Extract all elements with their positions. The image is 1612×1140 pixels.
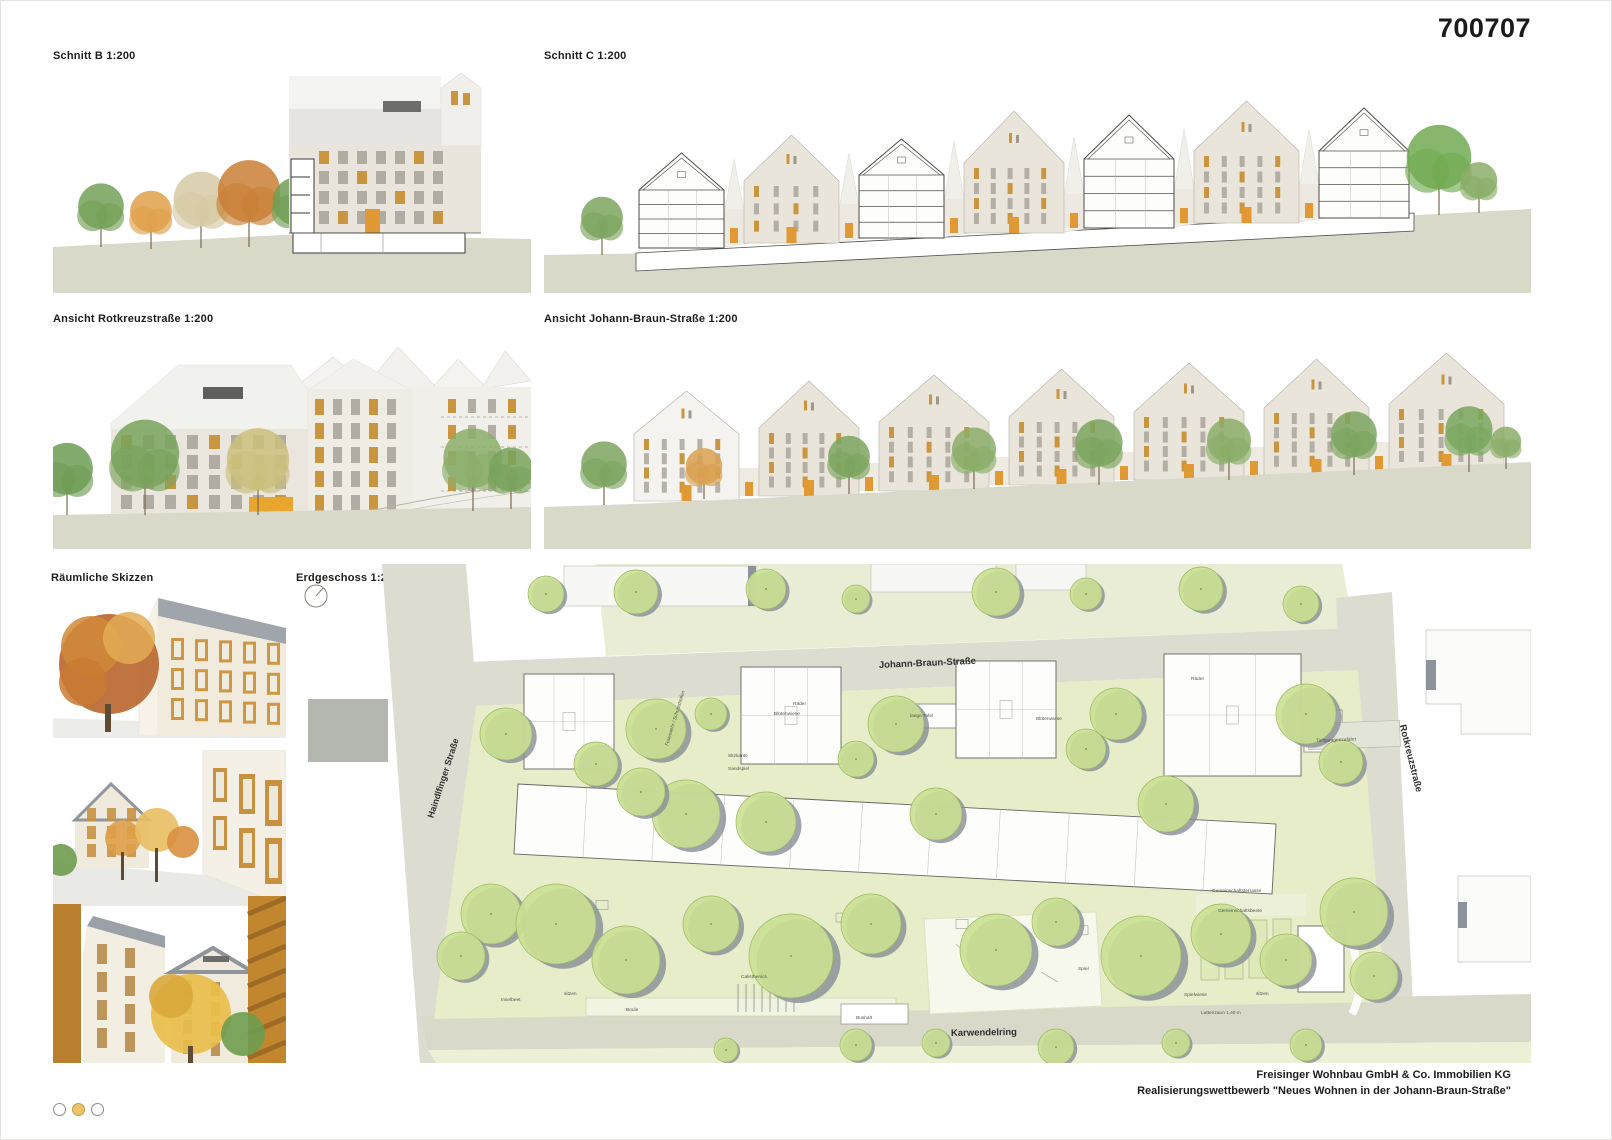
plan-label: Räder xyxy=(1191,676,1204,682)
tree-icon xyxy=(1460,162,1498,213)
page-dot[interactable] xyxy=(53,1103,66,1116)
tree-icon xyxy=(216,160,280,247)
tree-icon xyxy=(528,576,567,614)
sketch-perspective-2 xyxy=(53,750,286,906)
plan-label: Gemeinschaftsterrasse xyxy=(1212,888,1262,894)
plan-label: Gemeinschaftsbeete xyxy=(1218,908,1262,914)
plan-label: sitzen xyxy=(1256,991,1269,997)
plan-label: Sitzkante xyxy=(728,753,748,759)
plan-label: Blütenwiese xyxy=(1036,716,1062,722)
tree-icon xyxy=(53,443,93,515)
page-dot[interactable] xyxy=(72,1103,85,1116)
plan-label: Boule xyxy=(626,1007,639,1013)
plan-label: Lattenzaun 1,40 m xyxy=(1201,1010,1241,1016)
schnitt-c-drawing xyxy=(544,63,1531,293)
plan-label: sitzen xyxy=(564,991,577,997)
competition-board: 700707 Schnitt B 1:200 Schnitt C 1:200 A… xyxy=(0,0,1612,1140)
tree-icon xyxy=(1405,125,1472,215)
skizzen-title: Räumliche Skizzen xyxy=(51,572,153,584)
sketch-perspective-3 xyxy=(53,896,286,1063)
plan-label: Spiel xyxy=(1078,966,1089,972)
schnitt-b-title: Schnitt B 1:200 xyxy=(53,50,135,62)
bus-stop xyxy=(841,1004,908,1024)
plan-label: Calisthenics xyxy=(741,974,767,980)
plan-label: Räder xyxy=(793,701,806,707)
schnitt-b-drawing xyxy=(53,63,531,293)
sketch-perspective-1 xyxy=(53,586,286,738)
page-indicator xyxy=(53,1103,104,1116)
plan-label: Spielwiese xyxy=(1184,992,1207,998)
tree-icon xyxy=(580,441,627,505)
tree-icon xyxy=(580,197,623,255)
page-dot[interactable] xyxy=(91,1103,104,1116)
tree-icon xyxy=(129,191,172,249)
street-label-karwendelring: Karwendelring xyxy=(951,1027,1017,1039)
north-arrow-icon xyxy=(305,585,327,607)
existing-building xyxy=(308,699,388,762)
competition-name: Realisierungswettbewerb "Neues Wohnen in… xyxy=(1137,1083,1511,1099)
board-number: 700707 xyxy=(1438,13,1531,44)
plan-label: Bushalt xyxy=(856,1015,873,1021)
client-name: Freisinger Wohnbau GmbH & Co. Immobilien… xyxy=(1137,1067,1511,1083)
ground-floor-plan: Johann-Braun-Straße Haindlfinger Straße … xyxy=(296,564,1531,1063)
plan-label: Sandspiel xyxy=(728,766,749,772)
building-section xyxy=(289,73,481,253)
existing-buildings-east xyxy=(1426,630,1531,962)
sketch-building xyxy=(139,598,286,736)
ansicht-rotkreuz-title: Ansicht Rotkreuzstraße 1:200 xyxy=(53,313,213,325)
tree-icon xyxy=(77,183,124,247)
plan-label: Blütenwiese xyxy=(774,711,800,717)
schnitt-c-title: Schnitt C 1:200 xyxy=(544,50,626,62)
plan-label: lange Tafel xyxy=(910,713,933,719)
ansicht-johann-title: Ansicht Johann-Braun-Straße 1:200 xyxy=(544,313,738,325)
footer-credit: Freisinger Wohnbau GmbH & Co. Immobilien… xyxy=(1137,1067,1511,1099)
ansicht-rotkreuz-drawing xyxy=(53,329,531,549)
ansicht-johann-drawing xyxy=(544,329,1531,549)
plan-label: Inselbeet xyxy=(501,997,521,1003)
